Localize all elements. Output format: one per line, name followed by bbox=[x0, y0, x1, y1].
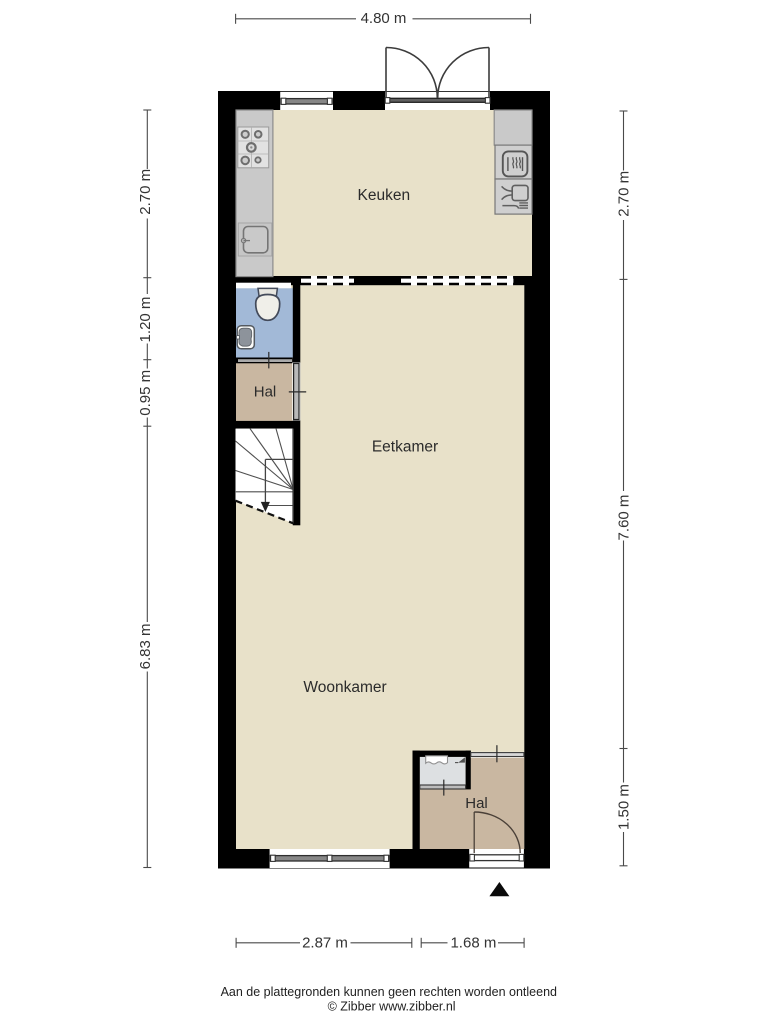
svg-text:0.95 m: 0.95 m bbox=[137, 370, 154, 416]
svg-text:Hal: Hal bbox=[465, 795, 488, 812]
svg-text:Eetkamer: Eetkamer bbox=[372, 438, 438, 455]
svg-text:1.68 m: 1.68 m bbox=[450, 934, 496, 951]
svg-text:Keuken: Keuken bbox=[358, 187, 411, 204]
svg-text:© Zibber www.zibber.nl: © Zibber www.zibber.nl bbox=[328, 999, 456, 1013]
svg-text:1.50 m: 1.50 m bbox=[616, 784, 633, 830]
svg-text:6.83 m: 6.83 m bbox=[137, 623, 154, 669]
svg-text:2.87 m: 2.87 m bbox=[302, 934, 348, 951]
svg-text:Hal: Hal bbox=[254, 383, 277, 400]
svg-text:2.70 m: 2.70 m bbox=[616, 171, 633, 217]
svg-text:Aan de plattegronden kunnen ge: Aan de plattegronden kunnen geen rechten… bbox=[221, 985, 557, 999]
svg-text:2.70 m: 2.70 m bbox=[137, 169, 154, 215]
svg-text:Woonkamer: Woonkamer bbox=[303, 679, 386, 696]
svg-text:4.80 m: 4.80 m bbox=[361, 10, 407, 27]
svg-text:7.60 m: 7.60 m bbox=[616, 495, 633, 541]
svg-text:1.20 m: 1.20 m bbox=[137, 297, 154, 343]
